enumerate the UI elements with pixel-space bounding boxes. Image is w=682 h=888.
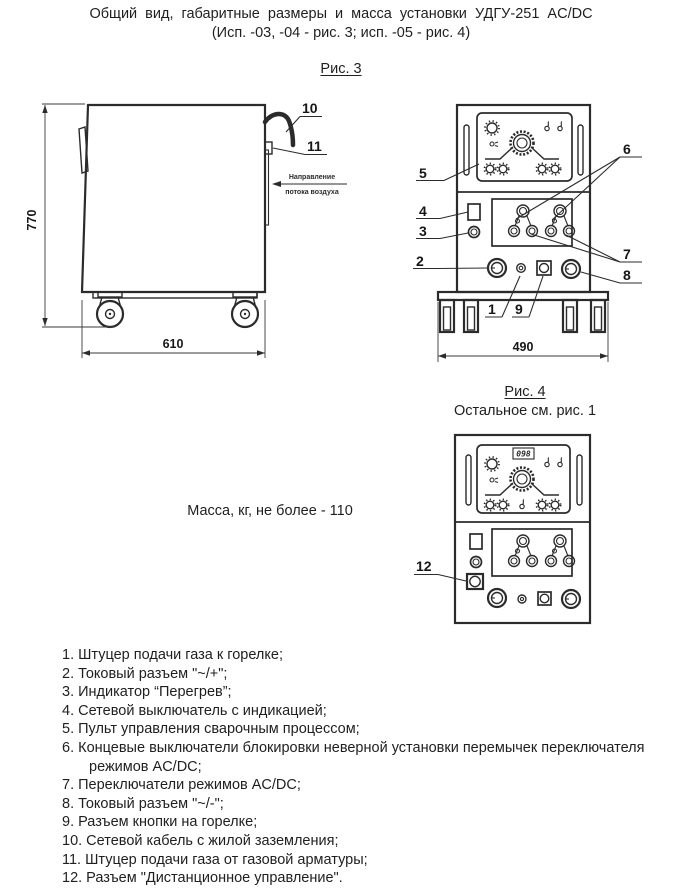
fig4-caption: Рис. 4 (400, 384, 650, 400)
overheat-indicator (471, 557, 482, 568)
dim-770-label: 770 (25, 210, 39, 231)
legend-item-8: 8. Токовый разъем "~/-"; (62, 795, 654, 814)
side-slat (578, 125, 583, 175)
dim-610-label: 610 (163, 337, 184, 351)
digital-display: 098 (513, 448, 534, 459)
legend-item-10: 10. Сетевой кабель с жилой заземления; (62, 832, 654, 851)
svg-text:8: 8 (623, 267, 631, 283)
airflow-annotation: Направление потока воздуха (272, 174, 347, 196)
remote-control-connector (467, 574, 483, 589)
side-slat (466, 455, 471, 505)
mode-switch-box (492, 199, 575, 246)
mass-note: Масса, кг, не более - 110 (120, 503, 420, 519)
svg-text:4: 4 (419, 203, 427, 219)
airflow-text-2: потока воздуха (285, 189, 339, 196)
fig4-front-view-drawing: 098 12 (400, 425, 682, 633)
spec-sheet-page: { "title": { "line1": "Общий вид, габари… (0, 0, 682, 888)
current-connector-plus (488, 259, 506, 277)
svg-text:6: 6 (623, 141, 631, 157)
svg-text:3: 3 (419, 223, 427, 239)
svg-text:11: 11 (307, 138, 322, 154)
svg-text:10: 10 (302, 100, 318, 116)
wheel (563, 300, 577, 332)
wheel (440, 300, 454, 332)
current-connector-minus (562, 260, 580, 278)
power-switch (468, 204, 480, 220)
torch-button-connector (538, 592, 551, 605)
legend-item-12: 12. Разъем "Дистанционное управление". (62, 869, 654, 888)
side-slat (577, 455, 582, 505)
legend-item-3: 3. Индикатор “Перегрев”; (62, 683, 654, 702)
base-plate (438, 292, 608, 300)
svg-text:2: 2 (416, 253, 424, 269)
dimension-width: 610 (82, 300, 265, 358)
legend-item-5: 5. Пульт управления сварочным процессом; (62, 720, 654, 739)
callout-2: 2 (413, 253, 488, 269)
control-panel-internals (484, 121, 562, 175)
fig4-note: Остальное см. рис. 1 (400, 403, 650, 419)
airflow-text-1: Направление (289, 174, 335, 181)
callout-3: 3 (416, 223, 468, 239)
torch-button-connector (537, 261, 551, 275)
fig3-front-view-drawing: 490 5 4 3 2 6 7 8 1 (400, 90, 682, 382)
fig3-side-view-drawing: 770 610 10 11 Направление потока воздуха (15, 90, 375, 375)
callout-11: 11 (273, 138, 327, 155)
fig3-caption: Рис. 3 (0, 61, 682, 77)
gas-outlet-fitting (518, 595, 526, 603)
caster-rear (232, 292, 258, 327)
callout-12: 12 (414, 558, 466, 581)
svg-text:7: 7 (623, 246, 631, 262)
legend-item-11: 11. Штуцер подачи газа от газовой армату… (62, 851, 654, 870)
callout-7: 7 (531, 234, 642, 262)
dimension-height: 770 (25, 104, 115, 327)
legend-item-1: 1. Штуцер подачи газа к горелке; (62, 646, 654, 665)
power-switch (470, 534, 482, 549)
page-title: Общий вид, габаритные размеры и масса ус… (0, 6, 682, 22)
wheel (464, 300, 478, 332)
page-subtitle: (Исп. -03, -04 - рис. 3; исп. -05 - рис.… (0, 25, 682, 41)
overheat-indicator (469, 227, 480, 238)
side-slat (464, 125, 469, 175)
legend-item-2: 2. Токовый разъем "~/+"; (62, 665, 654, 684)
legend-item-6: 6. Концевые выключатели блокировки невер… (62, 739, 654, 776)
callout-4: 4 (416, 203, 468, 219)
svg-text:1: 1 (488, 301, 496, 317)
torch-icon (520, 499, 524, 508)
caster-front (97, 292, 123, 327)
cabinet-side-outline (79, 105, 269, 298)
current-connector-minus (562, 590, 580, 608)
legend-item-4: 4. Сетевой выключатель с индикацией; (62, 702, 654, 721)
callout-9: 9 (512, 276, 543, 317)
svg-text:9: 9 (515, 301, 523, 317)
legend-item-9: 9. Разъем кнопки на горелке; (62, 813, 654, 832)
current-connector-plus (488, 589, 506, 607)
dim-490-label: 490 (513, 340, 534, 354)
legend-item-7: 7. Переключатели режимов AC/DC; (62, 776, 654, 795)
wheel (591, 300, 605, 332)
rear-vent (265, 150, 269, 225)
display-value: 098 (516, 450, 531, 459)
svg-text:5: 5 (419, 165, 427, 181)
gas-outlet-fitting (517, 264, 526, 273)
mode-switch-box (492, 529, 575, 576)
svg-text:12: 12 (416, 558, 432, 574)
legend-list: 1. Штуцер подачи газа к горелке; 2. Токо… (62, 646, 654, 888)
